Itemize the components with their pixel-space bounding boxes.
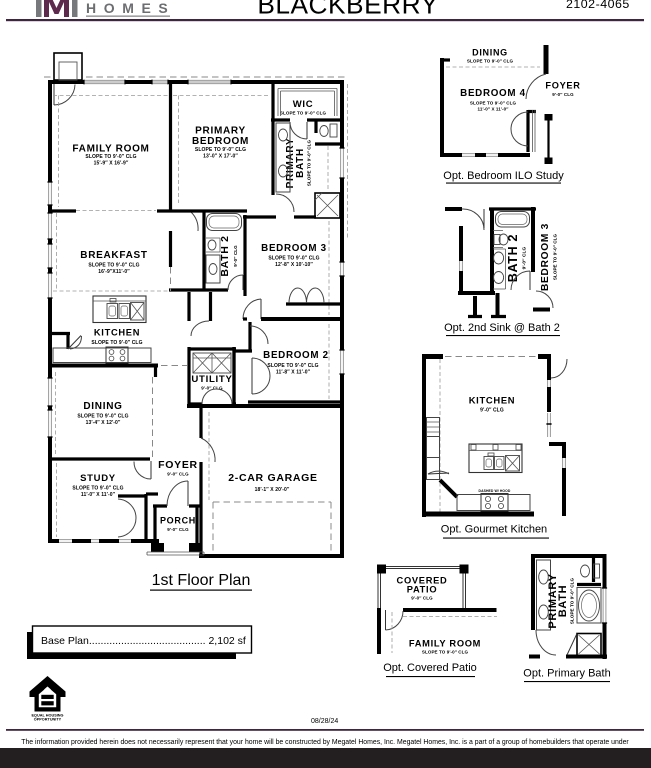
svg-text:BEDROOM 4: BEDROOM 4 (460, 88, 526, 99)
svg-text:DASHED W/ HOOD: DASHED W/ HOOD (479, 489, 511, 493)
svg-text:BATH: BATH (557, 585, 569, 618)
svg-text:Opt. Bedroom ILO Study: Opt. Bedroom ILO Study (443, 170, 564, 182)
svg-text:SLOPE TO 9′-0″ CLG: SLOPE TO 9′-0″ CLG (267, 363, 318, 369)
svg-text:SLOPE TO 9′-0″ CLG: SLOPE TO 9′-0″ CLG (268, 256, 319, 262)
svg-text:9′-0″ CLG: 9′-0″ CLG (167, 527, 189, 532)
svg-text:BEDROOM: BEDROOM (192, 136, 249, 147)
svg-text:Opt. Covered Patio: Opt. Covered Patio (383, 662, 477, 674)
svg-text:DINING: DINING (472, 48, 508, 58)
svg-text:STUDY: STUDY (80, 473, 116, 484)
svg-text:9′-0″ CLG: 9′-0″ CLG (233, 245, 238, 267)
svg-text:HOMES: HOMES (86, 0, 175, 16)
svg-text:13′-4″ X 12′-0″: 13′-4″ X 12′-0″ (86, 420, 121, 426)
svg-text:9′-0″ CLG: 9′-0″ CLG (552, 92, 574, 97)
svg-text:12′-8″ X 10′-10″: 12′-8″ X 10′-10″ (275, 262, 313, 268)
svg-text:9′-0″ CLG: 9′-0″ CLG (480, 408, 504, 414)
svg-text:UTILITY: UTILITY (191, 374, 232, 385)
svg-text:9′-0″ CLG: 9′-0″ CLG (411, 596, 433, 601)
svg-text:11′-0″ X 11′-0″: 11′-0″ X 11′-0″ (81, 492, 116, 498)
svg-text:BLACKBERRY: BLACKBERRY (257, 0, 438, 20)
svg-text:BEDROOM 3: BEDROOM 3 (261, 243, 327, 254)
svg-text:1st Floor Plan: 1st Floor Plan (152, 572, 251, 589)
svg-text:WIC: WIC (293, 99, 314, 110)
svg-text:SLOPE TO 9′-0″ CLG: SLOPE TO 9′-0″ CLG (422, 650, 469, 655)
svg-text:15′-9″ X 16′-9″: 15′-9″ X 16′-9″ (94, 161, 129, 167)
svg-text:PORCH: PORCH (160, 516, 196, 526)
svg-text:BEDROOM 3: BEDROOM 3 (540, 223, 551, 291)
svg-text:BREAKFAST: BREAKFAST (80, 250, 147, 261)
svg-text:2-CAR GARAGE: 2-CAR GARAGE (228, 472, 318, 484)
svg-text:The information provided herei: The information provided herein does not… (21, 739, 629, 746)
svg-text:Opt. Primary Bath: Opt. Primary Bath (523, 668, 610, 680)
svg-text:BATH: BATH (295, 148, 306, 178)
svg-text:9′-0″ CLG: 9′-0″ CLG (167, 472, 189, 477)
svg-text:11′-0″ X 11′-0″: 11′-0″ X 11′-0″ (478, 107, 510, 112)
svg-text:BEDROOM 2: BEDROOM 2 (263, 350, 329, 361)
svg-text:Base Plan.....................: Base Plan...............................… (41, 635, 246, 647)
svg-text:13′-0″ X 17′-0″: 13′-0″ X 17′-0″ (203, 154, 238, 160)
svg-text:OPPORTUNITY: OPPORTUNITY (34, 718, 62, 722)
svg-text:FOYER: FOYER (158, 459, 198, 471)
svg-text:FOYER: FOYER (545, 81, 580, 91)
svg-text:Opt. Gourmet Kitchen: Opt. Gourmet Kitchen (441, 524, 547, 536)
svg-text:11′-8″ X 11′-0″: 11′-8″ X 11′-0″ (276, 370, 311, 376)
svg-text:SLOPE TO 9′-0″ CLG: SLOPE TO 9′-0″ CLG (467, 59, 514, 64)
svg-text:18′-1″ X 20′-0″: 18′-1″ X 20′-0″ (255, 487, 290, 493)
svg-text:08/28/24: 08/28/24 (311, 718, 338, 725)
svg-text:KITCHEN: KITCHEN (94, 328, 140, 338)
svg-text:FAMILY ROOM: FAMILY ROOM (72, 144, 149, 155)
svg-text:SLOPE TO 9′-0″ CLG: SLOPE TO 9′-0″ CLG (570, 578, 575, 625)
svg-text:KITCHEN: KITCHEN (469, 395, 516, 406)
svg-text:SLOPE TO 9′-0″ CLG: SLOPE TO 9′-0″ CLG (72, 486, 123, 492)
svg-text:SLOPE TO 9′-0″ CLG: SLOPE TO 9′-0″ CLG (77, 414, 128, 420)
svg-text:PATIO: PATIO (407, 585, 438, 595)
svg-text:DINING: DINING (83, 401, 122, 412)
svg-text:SLOPE TO 9′-0″ CLG: SLOPE TO 9′-0″ CLG (88, 263, 139, 269)
svg-text:SLOPE TO 9′-0″ CLG: SLOPE TO 9′-0″ CLG (307, 140, 312, 187)
svg-text:9′-0″ CLG: 9′-0″ CLG (522, 246, 528, 269)
svg-text:SLOPE TO 9′-0″ CLG: SLOPE TO 9′-0″ CLG (280, 111, 327, 116)
svg-text:SLOPE TO 9′-0″ CLG: SLOPE TO 9′-0″ CLG (85, 154, 136, 160)
svg-text:BATH 2: BATH 2 (219, 235, 231, 276)
svg-text:PRIMARY: PRIMARY (195, 126, 246, 137)
svg-text:SLOPE TO 9′-0″ CLG: SLOPE TO 9′-0″ CLG (470, 101, 517, 106)
svg-text:SLOPE TO 9′-0″ CLG: SLOPE TO 9′-0″ CLG (195, 147, 246, 153)
svg-text:FAMILY ROOM: FAMILY ROOM (409, 639, 481, 649)
svg-text:SLOPE TO 9′-0″ CLG: SLOPE TO 9′-0″ CLG (553, 234, 558, 281)
svg-text:16′-9″X11′-0″: 16′-9″X11′-0″ (98, 269, 130, 275)
svg-text:Opt. 2nd Sink @ Bath 2: Opt. 2nd Sink @ Bath 2 (444, 322, 560, 334)
svg-text:SLOPE TO 9′-0″ CLG: SLOPE TO 9′-0″ CLG (91, 340, 142, 346)
svg-text:2102-4065: 2102-4065 (566, 0, 630, 11)
